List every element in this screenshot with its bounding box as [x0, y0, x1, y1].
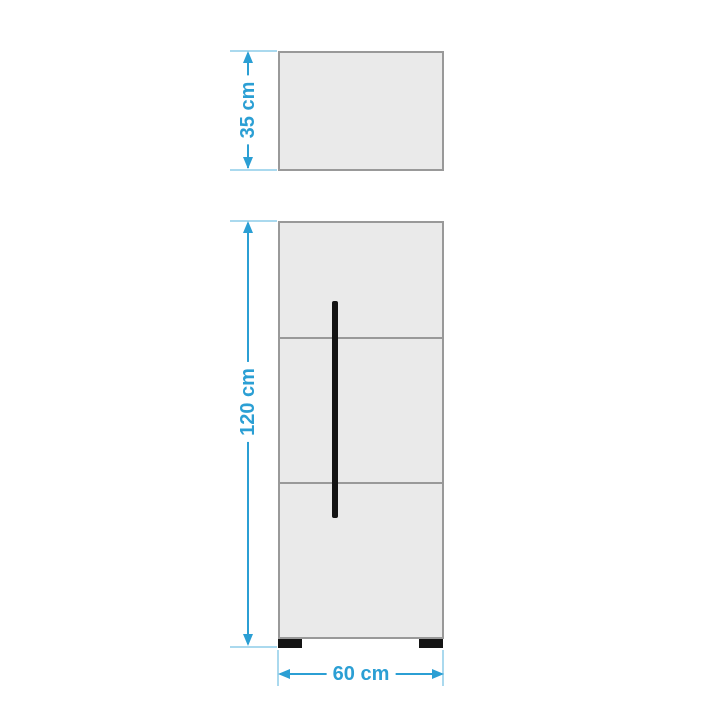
dimension-label-120cm: 120 cm [236, 362, 260, 442]
arrow-up-icon [243, 51, 253, 63]
extension-line-top [230, 220, 277, 222]
left-foot [278, 639, 302, 648]
arrow-up-icon [243, 221, 253, 233]
dimension-label-35cm: 35 cm [236, 76, 260, 145]
lower-door-divider-line [280, 482, 442, 484]
right-foot [419, 639, 443, 648]
extension-line-left [277, 650, 279, 686]
extension-line-top [230, 50, 277, 52]
main-cabinet-body [278, 221, 444, 639]
arrow-left-icon [278, 669, 290, 679]
extension-line-bottom [230, 169, 277, 171]
dimension-label-60cm: 60 cm [327, 662, 396, 686]
furniture-dimension-diagram: 35 cm 120 cm 60 cm [0, 0, 725, 725]
arrow-down-icon [243, 157, 253, 169]
door-handle [332, 301, 338, 518]
extension-line-right [442, 650, 444, 686]
arrow-down-icon [243, 634, 253, 646]
upper-door-divider-line [280, 337, 442, 339]
extension-line-bottom [230, 646, 277, 648]
arrow-right-icon [432, 669, 444, 679]
top-cabinet-box [278, 51, 444, 171]
